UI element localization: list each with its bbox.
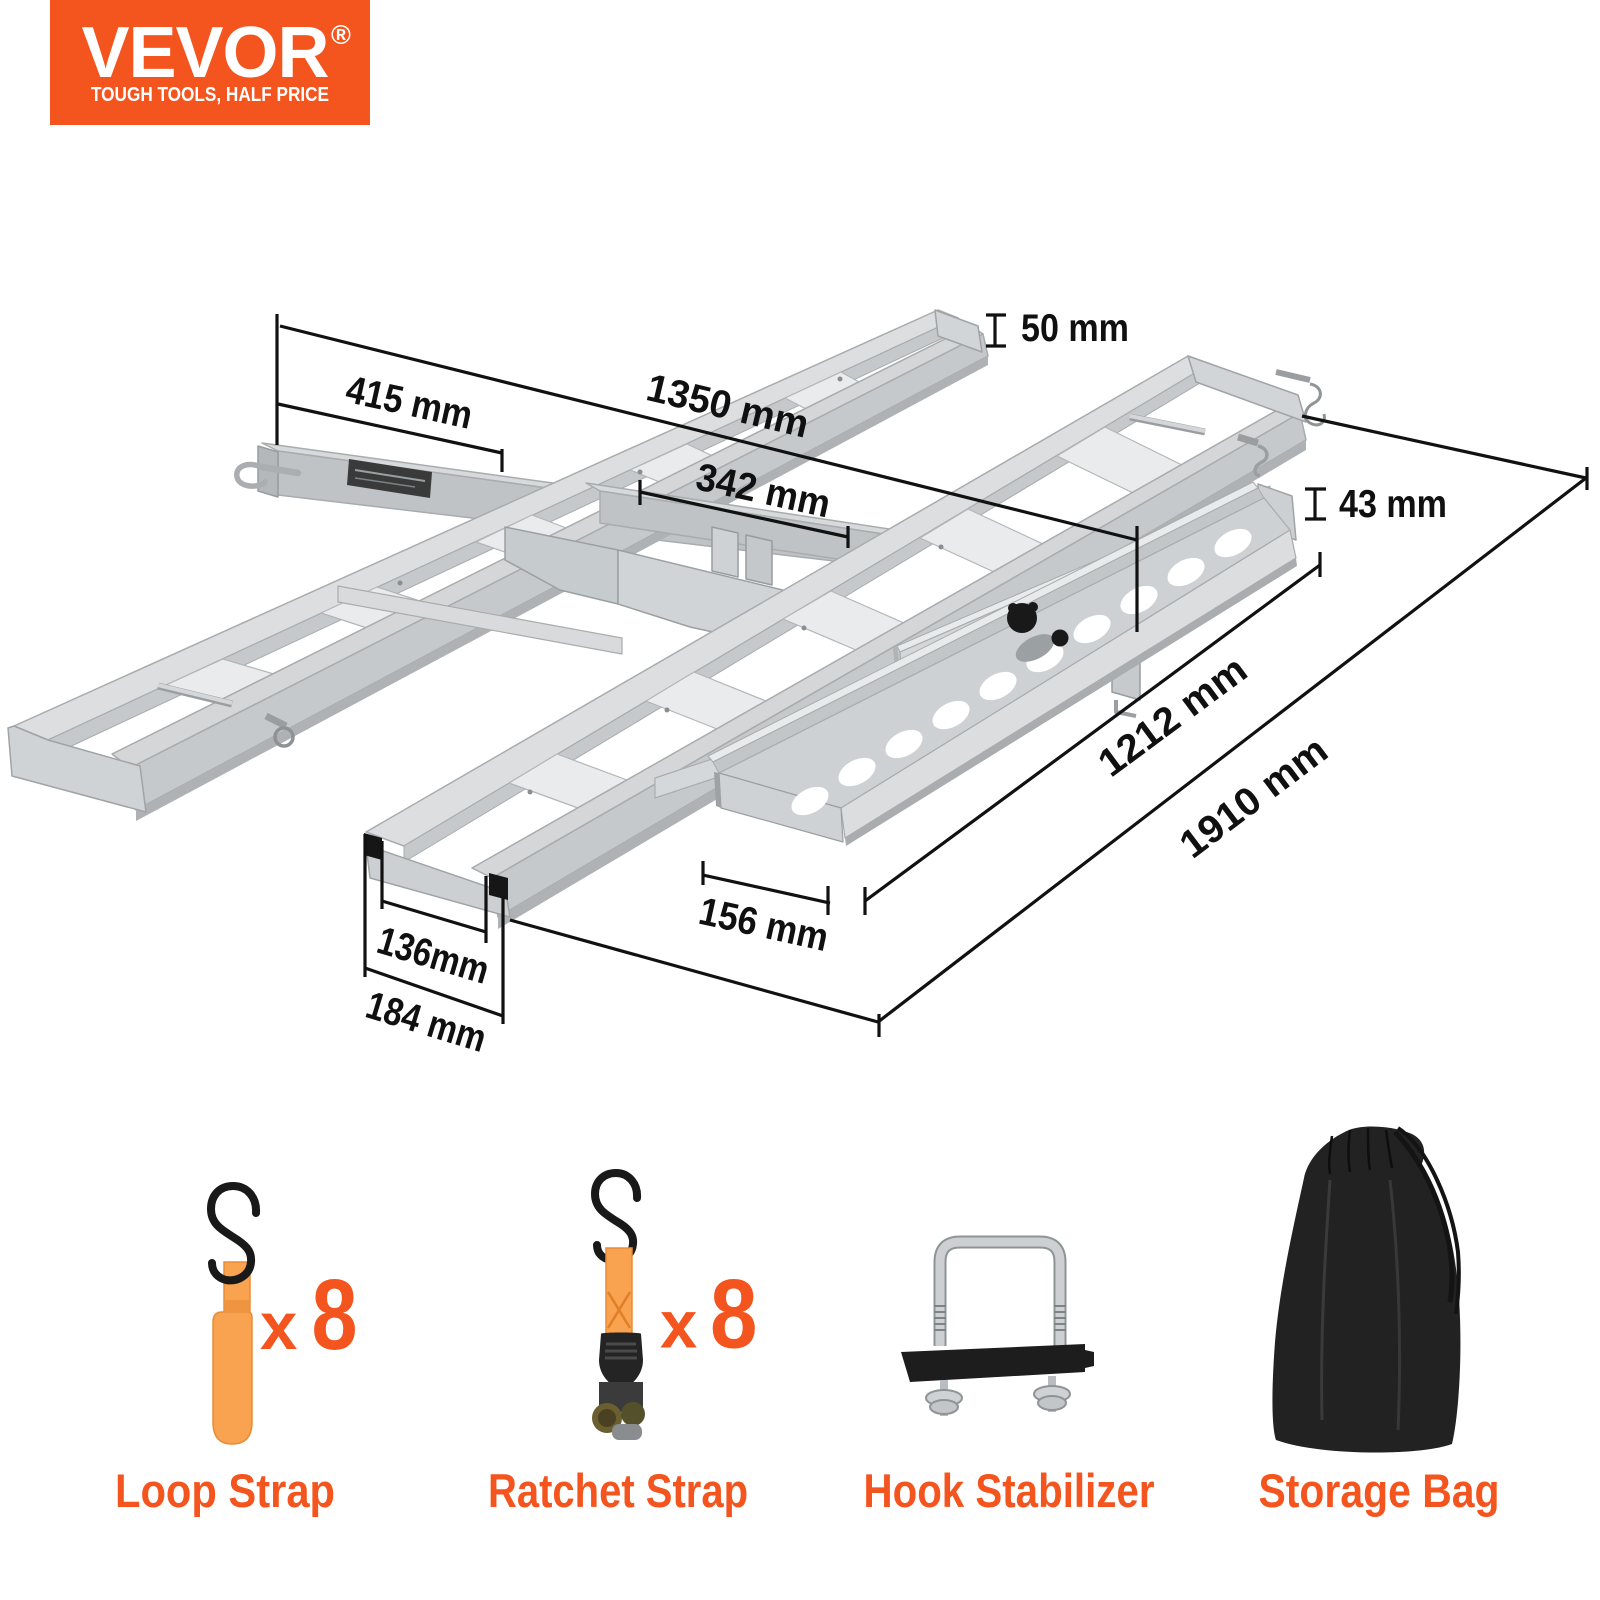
svg-text:8: 8 bbox=[312, 1258, 358, 1370]
svg-text:Storage Bag: Storage Bag bbox=[1259, 1464, 1500, 1517]
svg-text:Loop Strap: Loop Strap bbox=[115, 1464, 335, 1517]
svg-text:VEVOR: VEVOR bbox=[81, 13, 328, 93]
svg-text:Ratchet Strap: Ratchet Strap bbox=[488, 1464, 748, 1517]
svg-text:8: 8 bbox=[710, 1260, 757, 1369]
svg-text:x: x bbox=[660, 1288, 697, 1363]
svg-text:x: x bbox=[260, 1289, 297, 1364]
svg-text:®: ® bbox=[331, 20, 351, 50]
svg-text:50 mm: 50 mm bbox=[1021, 307, 1129, 350]
svg-text:Hook Stabilizer: Hook Stabilizer bbox=[864, 1464, 1155, 1517]
svg-text:TOUGH TOOLS, HALF PRICE: TOUGH TOOLS, HALF PRICE bbox=[91, 84, 329, 106]
svg-text:43 mm: 43 mm bbox=[1339, 483, 1447, 526]
